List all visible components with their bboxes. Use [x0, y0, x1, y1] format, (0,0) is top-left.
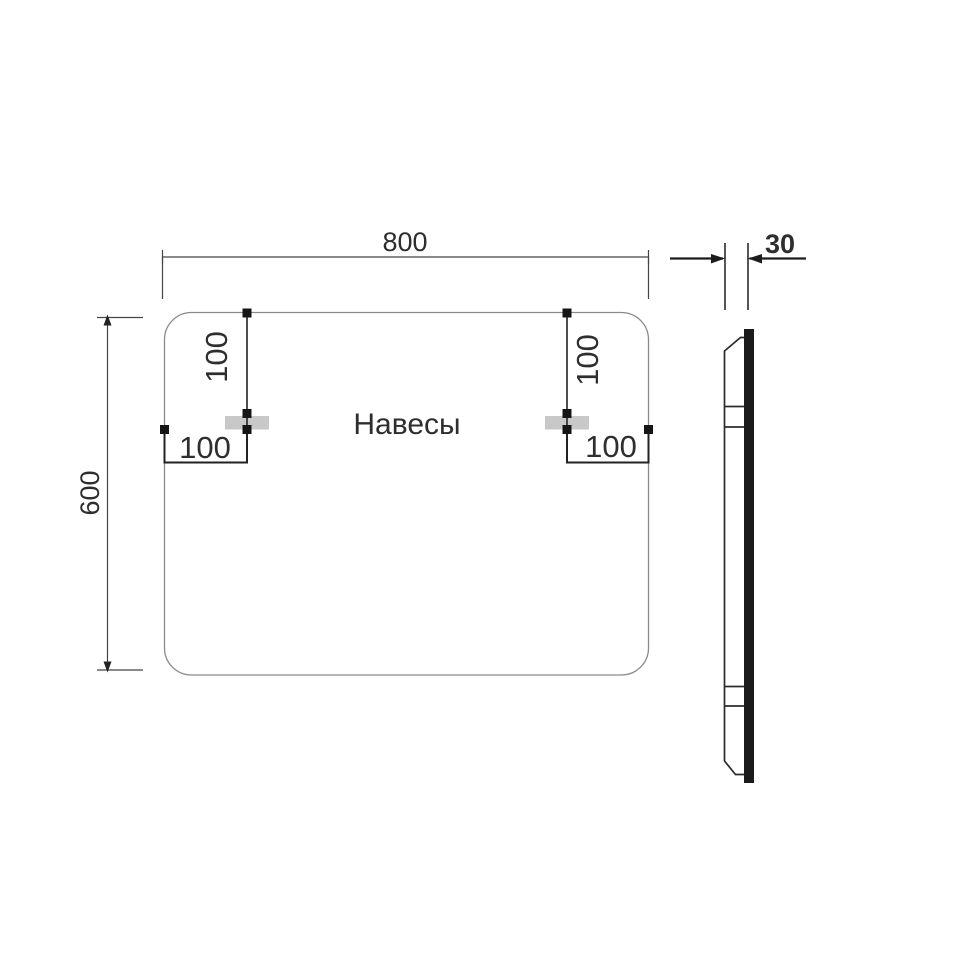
hanger-top-offset-right-value: 100 — [570, 334, 605, 386]
hanger-side-offset-left-value: 100 — [179, 430, 231, 465]
mirror-dimension-drawing: 800 600 100 — [0, 0, 970, 970]
dimension-width — [163, 250, 649, 299]
front-view: 800 600 100 — [75, 227, 653, 675]
technical-drawing-canvas: 800 600 100 — [0, 0, 970, 970]
marker-square — [160, 425, 169, 434]
backing-panel-outline — [725, 338, 745, 775]
arrowhead-left-icon — [748, 254, 762, 264]
arrowhead-up-icon — [104, 315, 112, 326]
marker-square — [563, 409, 572, 418]
side-view: 30 — [670, 229, 806, 783]
marker-square — [563, 425, 572, 434]
glass-edge — [744, 329, 754, 783]
hanger-top-offset-left-value: 100 — [199, 331, 234, 383]
marker-square — [243, 309, 252, 318]
marker-square — [563, 309, 572, 318]
marker-square — [644, 425, 653, 434]
hanger-side-offset-right-value: 100 — [585, 429, 637, 464]
marker-square — [243, 425, 252, 434]
height-value: 600 — [75, 470, 105, 515]
arrowhead-down-icon — [104, 662, 112, 673]
arrowhead-right-icon — [711, 254, 725, 264]
hangers-label: Навесы — [353, 408, 460, 441]
marker-square — [243, 409, 252, 418]
depth-value: 30 — [765, 229, 795, 259]
width-value: 800 — [382, 227, 427, 257]
